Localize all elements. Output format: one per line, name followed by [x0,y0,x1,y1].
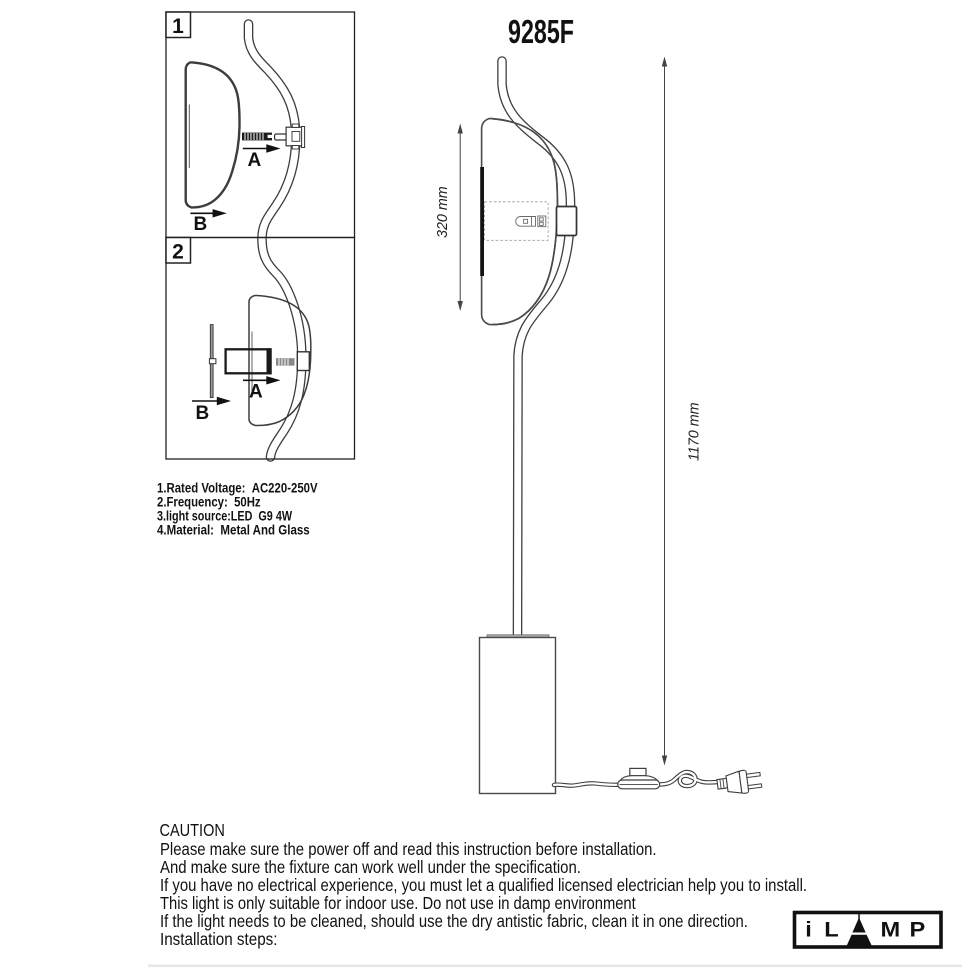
svg-text:B: B [194,214,208,235]
svg-text:2: 2 [172,241,184,264]
svg-text:A: A [249,382,263,403]
svg-text:B: B [196,403,210,424]
svg-text:i: i [805,917,812,941]
svg-text:Installation steps:: Installation steps: [160,930,278,949]
svg-text:M: M [881,917,901,941]
svg-text:1170 mm: 1170 mm [687,402,703,461]
svg-text:If you have no electrical expe: If you have no electrical experience, yo… [160,876,807,895]
svg-text:This light is only suitable fo: This light is only suitable for indoor u… [160,894,636,914]
svg-text:L: L [824,917,839,941]
svg-text:3.light source:LED G9 4W: 3.light source:LED G9 4W [157,508,292,524]
svg-text:And make sure the fixture can: And make sure the fixture can work well … [160,858,581,877]
svg-text:A: A [248,150,262,171]
svg-text:9285F: 9285F [508,14,574,51]
svg-text:1: 1 [172,15,184,38]
svg-text:P: P [910,917,926,941]
svg-text:320 mm: 320 mm [435,186,451,238]
svg-text:4.Material: Metal And Glass: 4.Material: Metal And Glass [157,523,310,538]
svg-text:If the light needs to be clean: If the light needs to be cleaned, should… [160,912,748,931]
svg-text:Please make sure the power off: Please make sure the power off and read … [160,840,657,859]
svg-text:CAUTION: CAUTION [160,821,225,841]
